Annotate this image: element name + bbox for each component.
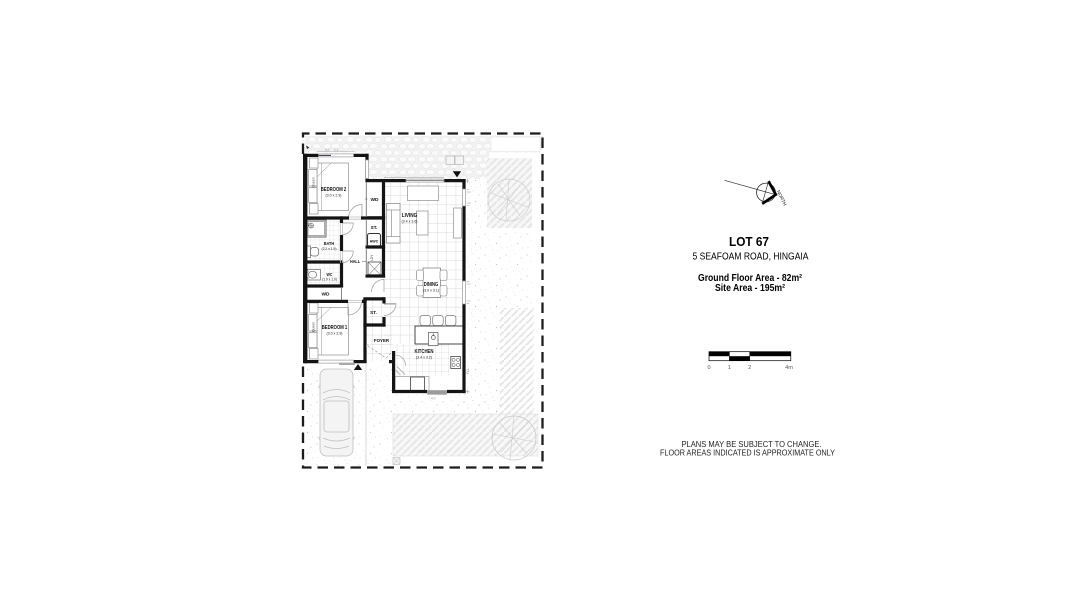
svg-text:Queen: Queen — [312, 177, 316, 187]
svg-text:FLOOR AREAS INDICATED IS APPRO: FLOOR AREAS INDICATED IS APPROXIMATE ONL… — [660, 449, 836, 458]
svg-text:2: 2 — [748, 365, 751, 371]
svg-text:4m: 4m — [785, 365, 793, 371]
svg-text:(3.4 x 3.2): (3.4 x 3.2) — [416, 355, 433, 360]
svg-text:Queen: Queen — [312, 322, 316, 332]
svg-text:HWC: HWC — [370, 239, 379, 243]
svg-text:(1.9 x 1.0): (1.9 x 1.0) — [322, 278, 338, 282]
svg-text:BATH: BATH — [324, 241, 335, 246]
svg-text:FCL: FCL — [466, 368, 470, 375]
svg-text:5.0: 5.0 — [325, 148, 330, 152]
svg-text:FOYER: FOYER — [374, 338, 390, 344]
svg-text:5 SEAFOAM ROAD, HINGAIA: 5 SEAFOAM ROAD, HINGAIA — [693, 252, 809, 263]
svg-text:(3.0 x 2.9): (3.0 x 2.9) — [326, 193, 343, 198]
svg-text:1: 1 — [728, 365, 731, 371]
svg-text:2.1: 2.1 — [334, 148, 339, 152]
svg-text:ST.: ST. — [370, 310, 377, 315]
svg-text:(3.4 x 3.6): (3.4 x 3.6) — [402, 219, 419, 224]
svg-text:HALL: HALL — [350, 259, 360, 264]
svg-text:WD: WD — [322, 292, 331, 298]
svg-text:WC: WC — [327, 272, 334, 277]
svg-text:(3.0 x 3.1): (3.0 x 3.1) — [423, 288, 440, 293]
svg-text:Site Area - 195m²: Site Area - 195m² — [715, 283, 786, 294]
svg-text:0: 0 — [707, 365, 710, 371]
svg-text:ST.: ST. — [371, 225, 378, 230]
svg-text:(3.0 x 2.9): (3.0 x 2.9) — [327, 331, 344, 336]
svg-text:4.0: 4.0 — [431, 397, 436, 401]
svg-text:LDY: LDY — [370, 254, 374, 261]
svg-text:(2.2 x 1.9): (2.2 x 1.9) — [322, 247, 338, 251]
svg-text:WD: WD — [371, 197, 380, 203]
svg-text:LOT 67: LOT 67 — [729, 234, 769, 249]
